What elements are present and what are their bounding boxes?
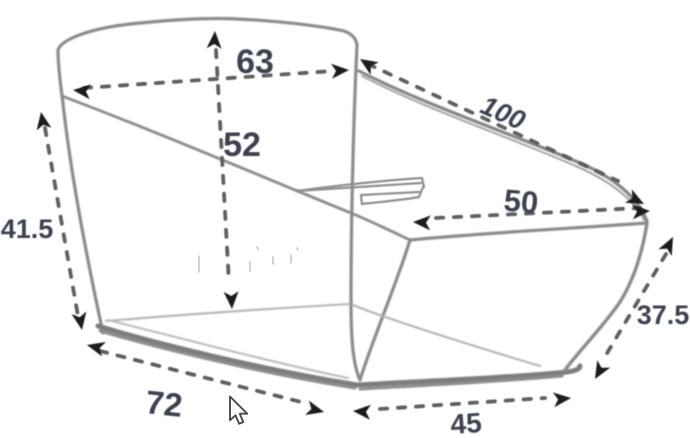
svg-text:37.5: 37.5 [637, 300, 690, 330]
svg-text:41.5: 41.5 [1, 214, 54, 244]
svg-text:63: 63 [236, 43, 274, 81]
svg-text:45: 45 [449, 407, 482, 438]
svg-text:50: 50 [502, 183, 539, 221]
svg-text:72: 72 [144, 383, 184, 424]
svg-text:52: 52 [223, 126, 261, 164]
